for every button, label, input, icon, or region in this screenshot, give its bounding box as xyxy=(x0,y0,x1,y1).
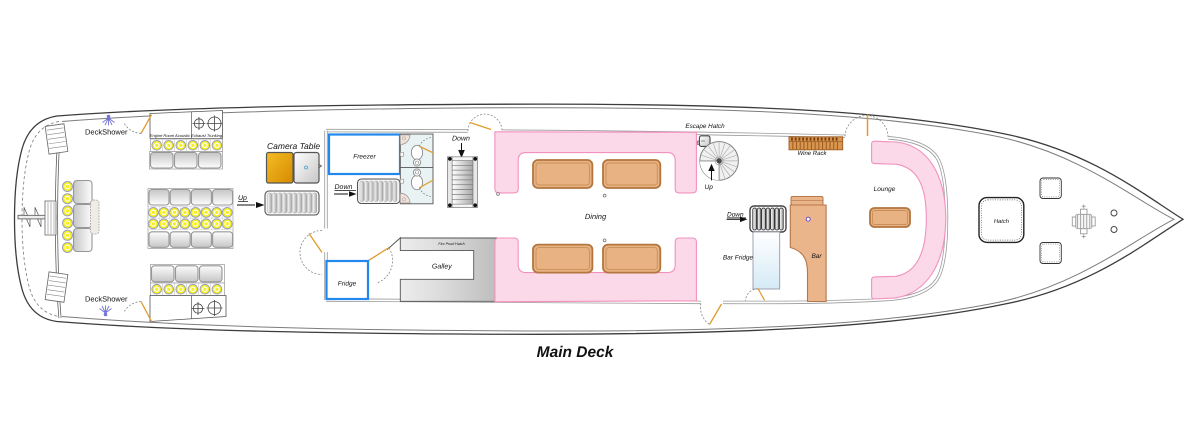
svg-text:Lounge: Lounge xyxy=(874,186,896,193)
svg-text:Fire Proof Hatch: Fire Proof Hatch xyxy=(438,242,464,246)
svg-text:Down: Down xyxy=(452,136,470,143)
svg-text:Up: Up xyxy=(238,195,247,202)
svg-text:Fridge: Fridge xyxy=(338,281,357,288)
svg-text:Down: Down xyxy=(335,184,353,191)
svg-text:Dining: Dining xyxy=(585,212,607,221)
svg-text:Escape Hatch: Escape Hatch xyxy=(685,123,725,130)
svg-text:Up: Up xyxy=(705,184,714,191)
svg-text:Bar Fridge: Bar Fridge xyxy=(723,255,754,262)
svg-text:Galley: Galley xyxy=(432,262,452,270)
svg-text:Main Deck: Main Deck xyxy=(537,344,615,361)
svg-text:Freezer: Freezer xyxy=(353,154,376,161)
svg-text:Hatch: Hatch xyxy=(994,218,1009,225)
svg-text:Bar: Bar xyxy=(811,253,822,260)
svg-text:Engine Room Acoustic Exhaust T: Engine Room Acoustic Exhaust Trunking xyxy=(150,133,223,138)
svg-text:Camera Table: Camera Table xyxy=(267,141,320,151)
svg-text:Wine Rack: Wine Rack xyxy=(798,150,828,157)
svg-text:DeckShower: DeckShower xyxy=(85,128,128,137)
svg-text:DeckShower: DeckShower xyxy=(85,295,128,304)
